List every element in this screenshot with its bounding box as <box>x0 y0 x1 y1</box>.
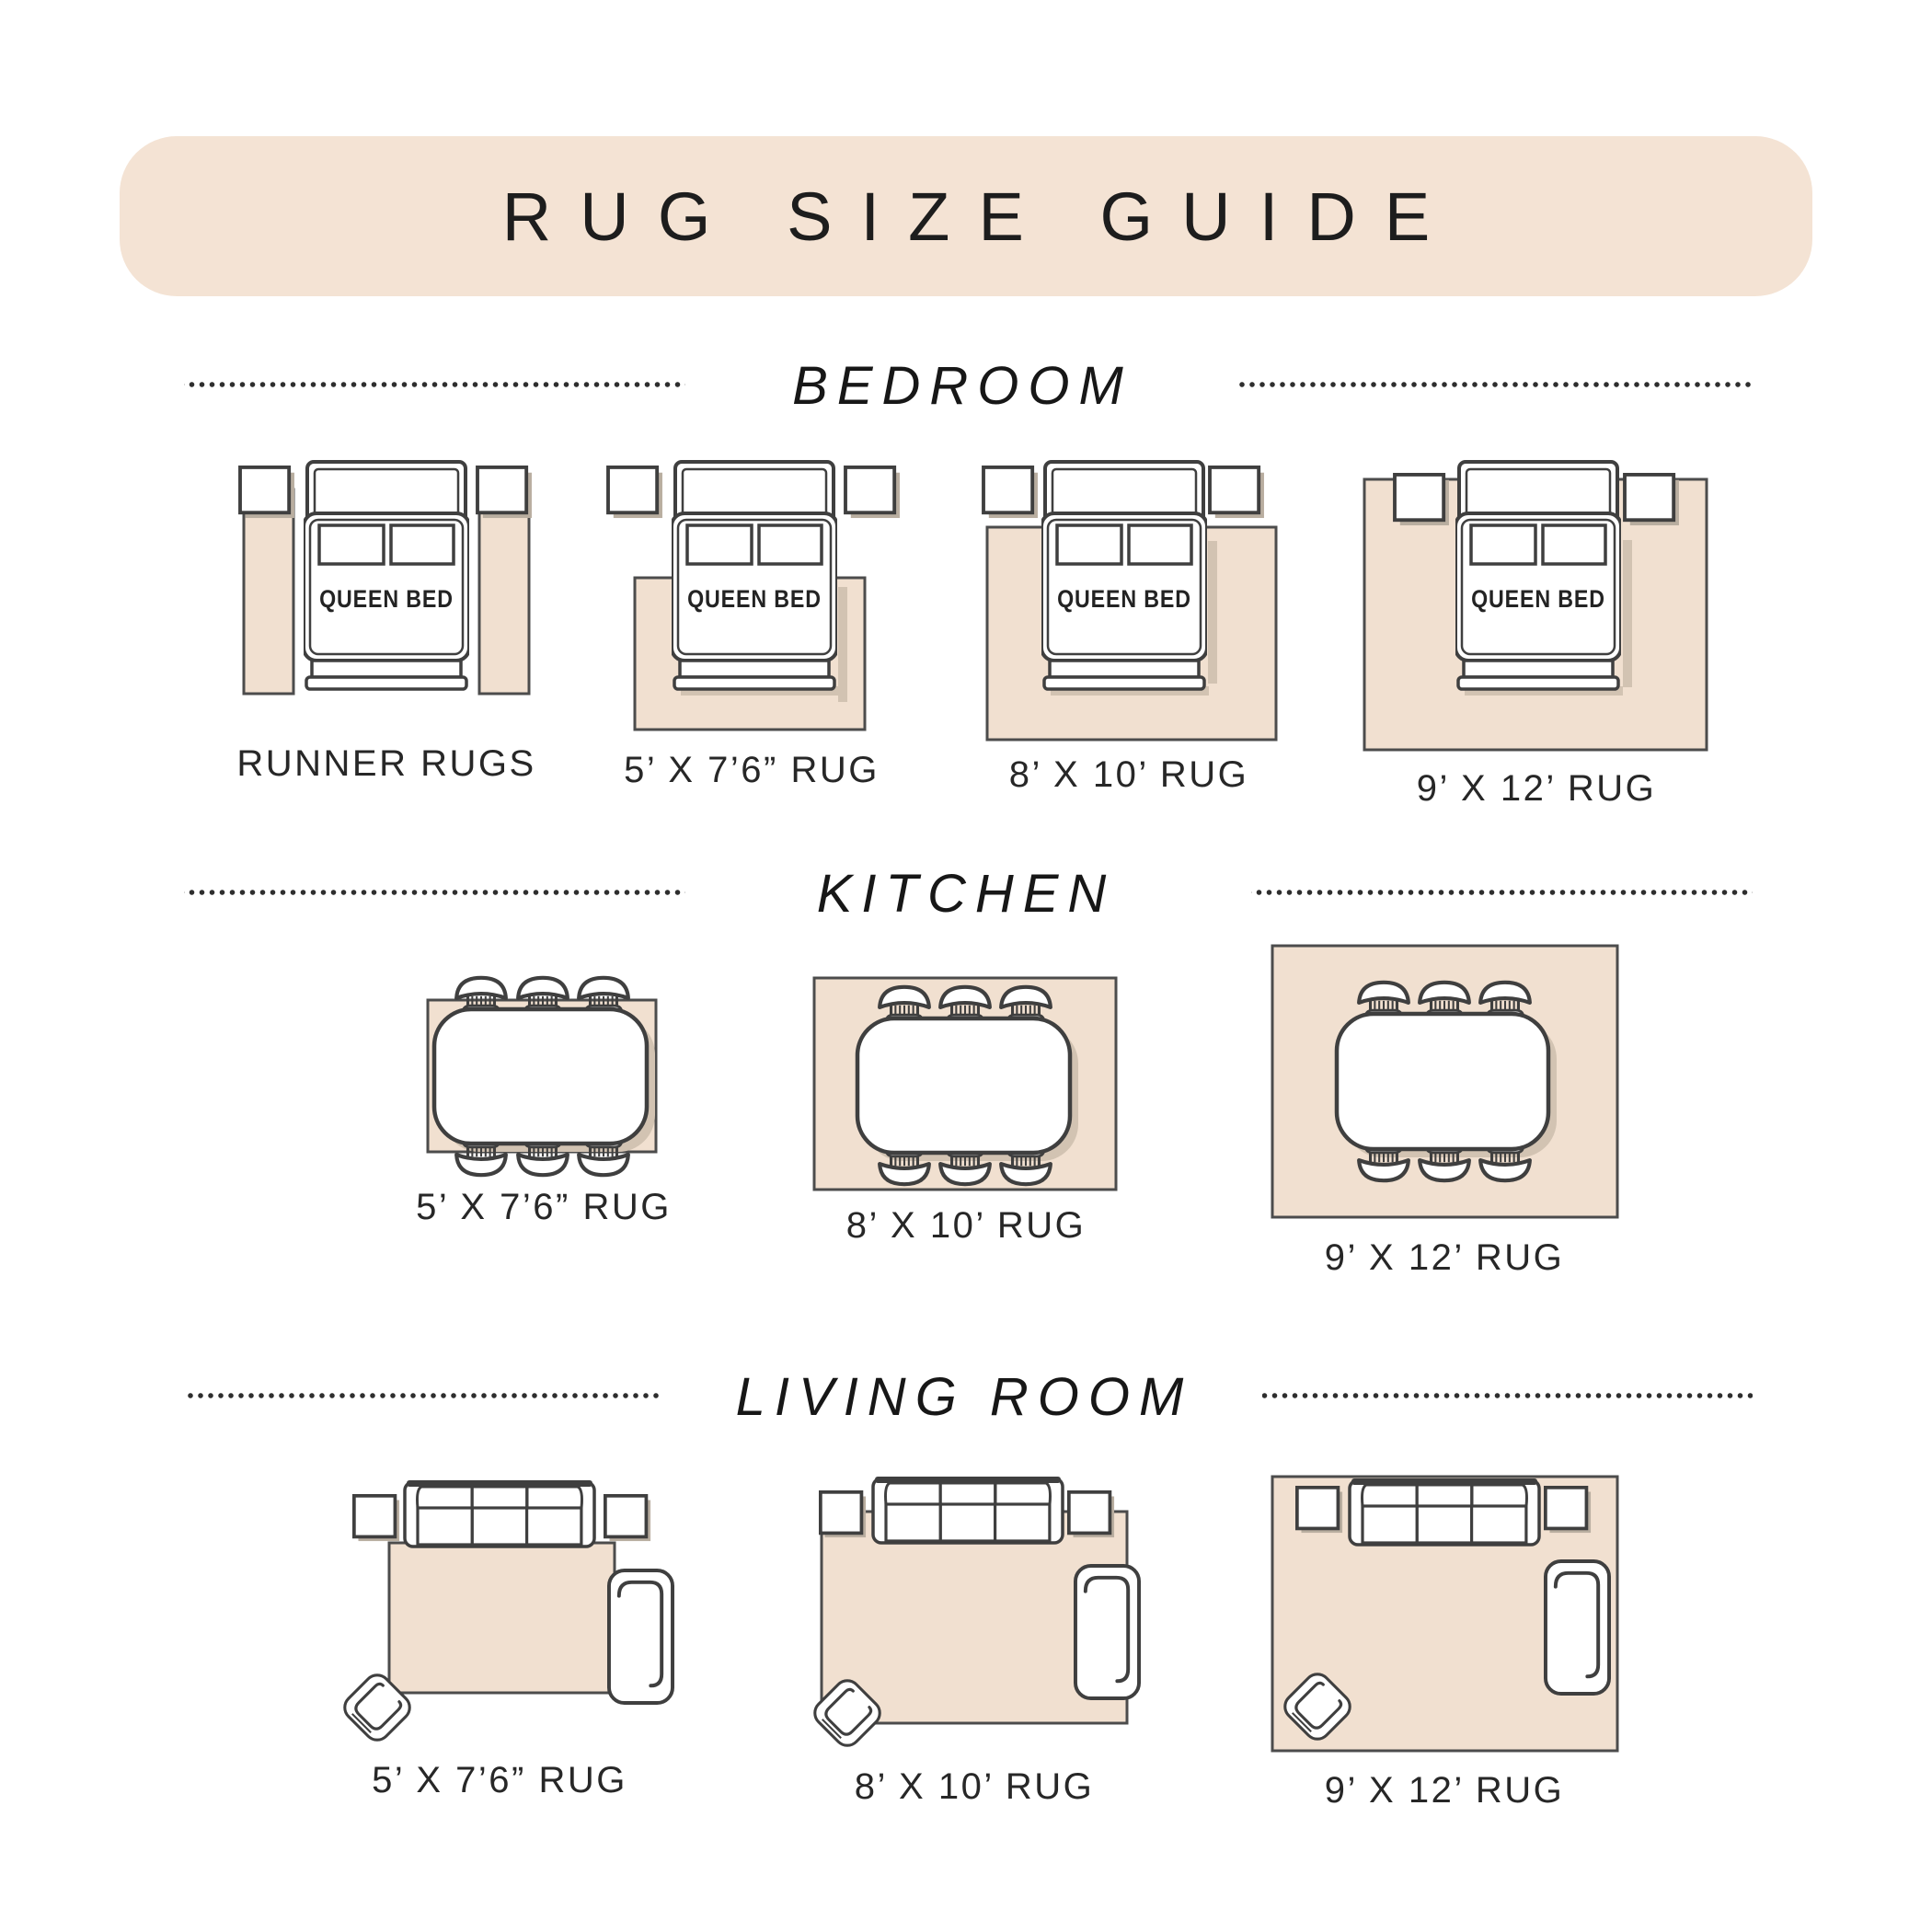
bedroom-divider-right <box>1237 380 1753 389</box>
queen-bed <box>304 462 469 689</box>
sofa <box>405 1480 594 1547</box>
living-8x10-diagram <box>776 1466 1222 1765</box>
rug-size-label: 9’ X 12’ RUG <box>1325 1770 1564 1811</box>
nightstand-right <box>1210 467 1264 518</box>
kitchen-divider-left <box>184 888 685 897</box>
nightstand-right <box>1625 475 1679 525</box>
sofa <box>1350 1478 1539 1545</box>
rug-size-label: 5’ X 7’6” RUG <box>416 1187 672 1228</box>
nightstand-left <box>983 467 1038 518</box>
title-band: RUG SIZE GUIDE <box>120 136 1812 296</box>
kitchen-8x10-diagram <box>810 969 1127 1203</box>
nightstand-left <box>608 467 662 518</box>
nightstand-left <box>1395 475 1449 525</box>
page-title: RUG SIZE GUIDE <box>474 178 1459 256</box>
section-title-kitchen: KITCHEN <box>817 863 1116 925</box>
lounge-chair <box>1546 1561 1609 1694</box>
side-table-left <box>821 1492 866 1537</box>
living-divider-right <box>1262 1391 1753 1400</box>
side-table-right <box>1546 1488 1591 1533</box>
dining-table <box>857 1018 1070 1153</box>
kitchen-9x12-diagram <box>1270 941 1624 1226</box>
bedroom-9x12-diagram <box>1360 453 1719 756</box>
rug-size-label: 8’ X 10’ RUG <box>1009 754 1248 796</box>
rug-size-label: RUNNER RUGS <box>236 743 535 785</box>
rug-size-label: 9’ X 12’ RUG <box>1417 768 1656 810</box>
rug-size-guide-infographic: QUEEN BED <box>0 0 1932 1932</box>
nightstand-right <box>845 467 900 518</box>
bedroom-5x76-diagram <box>603 458 906 743</box>
nightstand-left <box>240 467 294 518</box>
side-table-left <box>354 1496 399 1541</box>
lounge-chair <box>1075 1566 1139 1698</box>
side-table-right <box>1069 1492 1114 1537</box>
lounge-chair <box>609 1570 673 1703</box>
living-5x76-diagram <box>256 1466 688 1765</box>
nightstand-right <box>477 467 532 518</box>
rug-size-label: 5’ X 7’6” RUG <box>372 1760 627 1801</box>
queen-bed <box>1455 462 1621 689</box>
rug-size-label: 5’ X 7’6” RUG <box>624 750 880 791</box>
kitchen-divider-right <box>1251 888 1753 897</box>
section-title-living-room: LIVING ROOM <box>736 1366 1193 1428</box>
rug <box>389 1543 615 1693</box>
runner-rug-right <box>479 489 529 694</box>
bedroom-divider-left <box>184 380 685 389</box>
rug-size-label: 8’ X 10’ RUG <box>846 1205 1086 1247</box>
side-table-left <box>1297 1488 1342 1533</box>
section-title-bedroom: BEDROOM <box>792 355 1133 417</box>
living-9x12-diagram <box>1266 1466 1627 1765</box>
side-table-right <box>605 1496 650 1541</box>
queen-bed <box>672 462 837 689</box>
bedroom-8x10-diagram <box>980 458 1293 748</box>
bedroom-runner-rugs-diagram <box>235 458 538 734</box>
queen-bed <box>1041 462 1207 689</box>
dining-table <box>1337 1014 1548 1149</box>
kitchen-5x76-diagram <box>391 955 695 1180</box>
living-divider-left <box>184 1391 662 1400</box>
rug-size-label: 9’ X 12’ RUG <box>1325 1237 1564 1279</box>
rug-size-label: 8’ X 10’ RUG <box>855 1766 1094 1808</box>
dining-table <box>434 1009 647 1144</box>
sofa <box>873 1477 1063 1543</box>
runner-rug-left <box>244 489 293 694</box>
